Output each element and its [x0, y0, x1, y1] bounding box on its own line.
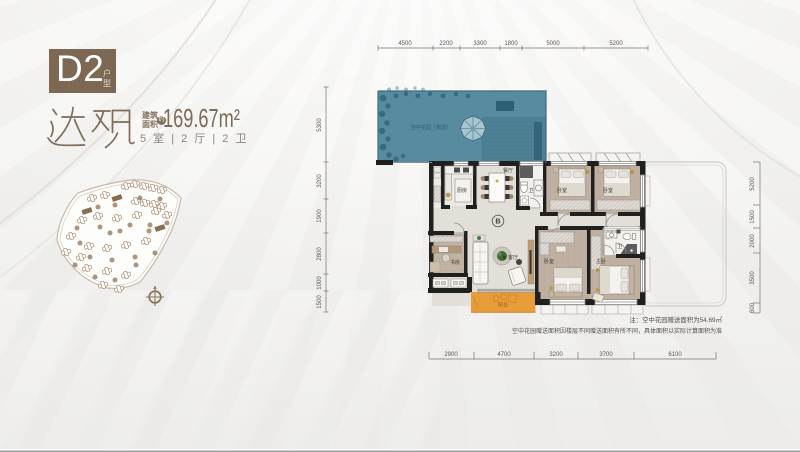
- svg-text:空中花园赠送面积因楼层不同赠送面积有所不同，具体面积以实际计: 空中花园赠送面积因楼层不同赠送面积有所不同，具体面积以实际计算面积为准: [512, 327, 722, 335]
- svg-text:阳台: 阳台: [498, 302, 508, 309]
- svg-text:卫: 卫: [617, 244, 622, 250]
- svg-text:卫: 卫: [528, 188, 533, 194]
- svg-text:空中花园（赠送）: 空中花园（赠送）: [411, 124, 451, 131]
- svg-text:1500: 1500: [317, 295, 323, 309]
- svg-text:2900: 2900: [444, 352, 458, 358]
- svg-text:600: 600: [750, 302, 756, 313]
- svg-text:3200: 3200: [549, 352, 563, 358]
- svg-text:卧室: 卧室: [603, 187, 613, 194]
- svg-text:5300: 5300: [317, 118, 323, 132]
- svg-text:注：空中花园赠送面积为54.69㎡: 注：空中花园赠送面积为54.69㎡: [629, 315, 722, 324]
- svg-text:4500: 4500: [398, 41, 412, 47]
- svg-text:1500: 1500: [750, 210, 756, 224]
- svg-text:6100: 6100: [668, 352, 682, 358]
- svg-text:2800: 2800: [317, 247, 323, 261]
- svg-text:4700: 4700: [497, 352, 511, 358]
- svg-text:2200: 2200: [439, 41, 453, 47]
- svg-text:5000: 5000: [546, 41, 560, 47]
- svg-text:1900: 1900: [317, 209, 323, 223]
- svg-text:厨房: 厨房: [457, 187, 467, 194]
- svg-text:2000: 2000: [750, 234, 756, 248]
- svg-text:3300: 3300: [473, 41, 487, 47]
- svg-text:卧室: 卧室: [557, 187, 567, 194]
- svg-text:主卧: 主卧: [596, 258, 606, 265]
- svg-text:1800: 1800: [504, 41, 518, 47]
- svg-text:5200: 5200: [750, 177, 756, 191]
- svg-text:餐厅: 餐厅: [503, 167, 513, 174]
- svg-text:B: B: [495, 217, 500, 226]
- svg-text:卧室: 卧室: [544, 258, 554, 265]
- svg-text:3700: 3700: [599, 352, 613, 358]
- svg-text:客厅: 客厅: [508, 254, 518, 261]
- svg-text:3200: 3200: [317, 174, 323, 188]
- svg-text:3500: 3500: [750, 271, 756, 285]
- svg-text:5200: 5200: [609, 41, 623, 47]
- svg-text:1000: 1000: [317, 276, 323, 290]
- svg-text:书房: 书房: [450, 259, 460, 266]
